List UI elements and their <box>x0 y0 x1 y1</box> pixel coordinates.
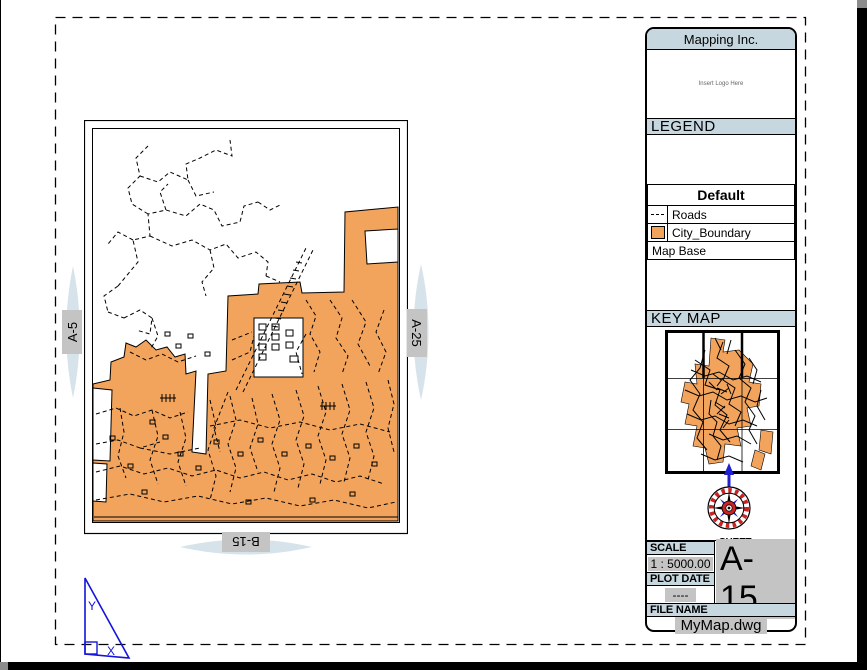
plot-date-label: PLOT DATE <box>647 573 710 585</box>
plot-date-value: ---- <box>665 588 697 602</box>
legend-title: LEGEND <box>647 118 716 135</box>
legend-table: Default Roads City_Boundary Map Base <box>647 184 795 260</box>
scale-sheet-table: SCALE 1 : 5000.00 PLOT DATE ---- SHEET N… <box>647 540 795 633</box>
file-name-value: MyMap.dwg <box>675 617 768 634</box>
file-name-label: FILE NAME <box>647 604 707 616</box>
roads-dash-symbol <box>648 206 668 223</box>
map-viewport[interactable] <box>84 120 408 535</box>
legend-item-city-boundary: City_Boundary <box>648 223 794 241</box>
company-name: Mapping Inc. <box>684 32 758 47</box>
plot-date-value-cell: ---- <box>647 586 715 603</box>
scale-value-cell: 1 : 5000.00 <box>647 555 715 572</box>
file-name-value-cell: MyMap.dwg <box>647 617 795 633</box>
matchline-label-left: A-5 <box>62 310 82 354</box>
scale-label: SCALE <box>647 542 686 554</box>
legend-group-header: Default <box>648 185 794 205</box>
legend-item-roads: Roads <box>648 205 794 223</box>
scale-value: 1 : 5000.00 <box>648 557 712 571</box>
ucs-paperspace-icon: Y X <box>80 574 136 666</box>
legend-item-label: Roads <box>668 208 707 222</box>
file-name-header: FILE NAME <box>647 603 795 617</box>
matchline-label-bottom: B-15 <box>222 532 270 552</box>
legend-base-row: Map Base <box>648 241 794 259</box>
legend-item-label: City_Boundary <box>668 226 751 240</box>
ucs-x-label: X <box>107 644 115 658</box>
company-header: Mapping Inc. <box>647 29 795 50</box>
layout-paper: A-5 A-25 B-15 Y X Mapping Inc. Insert Lo… <box>0 0 867 670</box>
logo-placeholder-text: Insert Logo Here <box>699 81 744 87</box>
scale-header: SCALE <box>647 541 715 555</box>
keymap-title: KEY MAP <box>647 310 721 327</box>
north-arrow-compass <box>705 462 753 532</box>
title-block: Mapping Inc. Insert Logo Here LEGEND Def… <box>645 27 797 632</box>
sheet-number-value-cell: A-15 <box>716 555 795 603</box>
plot-date-header: PLOT DATE <box>647 572 715 586</box>
matchline-label-right: A-25 <box>407 309 427 357</box>
city-boundary-swatch <box>648 224 668 241</box>
logo-area: Insert Logo Here <box>647 50 795 118</box>
keymap-section-header: KEY MAP <box>647 310 795 327</box>
key-map[interactable] <box>665 330 780 474</box>
legend-section-header: LEGEND <box>647 118 795 135</box>
ucs-y-label: Y <box>88 599 96 613</box>
